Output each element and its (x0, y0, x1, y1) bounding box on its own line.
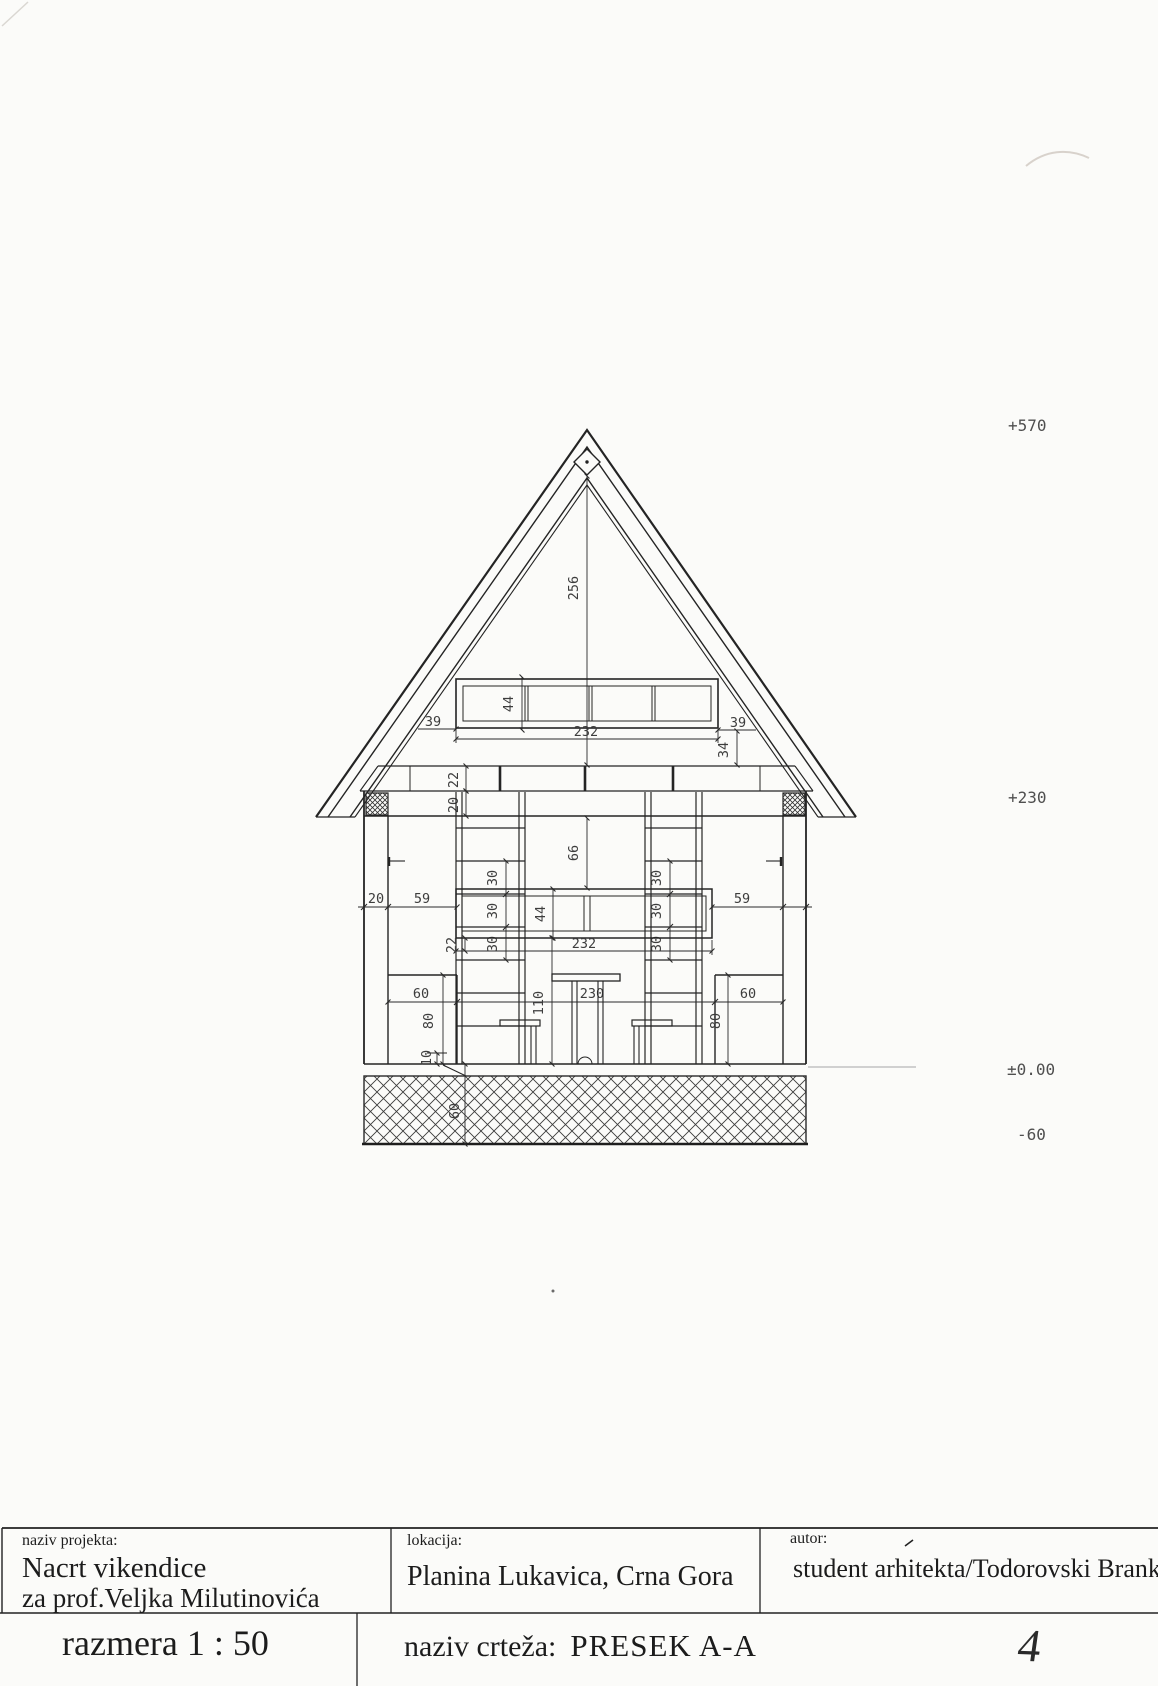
dim-label-232: 232 (572, 936, 596, 952)
dim-label-60-right: 60 (740, 986, 756, 1002)
dim-label-34: 34 (716, 742, 732, 758)
dim-label-44: 44 (533, 906, 549, 922)
dim-label-230: 230 (580, 986, 604, 1002)
drawing-title: naziv crteža: PRESEK A-A (404, 1630, 757, 1663)
scan-artifacts (2, 2, 1089, 1546)
shelf-column-left (456, 792, 525, 1064)
project-name: Nacrt vikendice (22, 1553, 206, 1583)
main-window-dims: 66 44 232 20 59 59 22 (358, 818, 812, 955)
scanned-sheet: 256 44 232 39 39 34 22 (0, 0, 1158, 1686)
elevation-ridge: +570 (1008, 416, 1047, 435)
dim-label-59-left: 59 (414, 891, 430, 907)
dim-label-sill-22: 22 (444, 937, 460, 953)
dim-label-66: 66 (566, 845, 582, 861)
drawing-title-name: PRESEK A-A (570, 1630, 757, 1663)
dim-label-foundation-60: 60 (447, 1103, 463, 1119)
dim-label-80-left: 80 (421, 1013, 437, 1029)
shelf-dims-left: 30 30 30 (485, 861, 509, 960)
wall-top-hatch-right (783, 793, 805, 815)
scale-value: razmera 1 : 50 (62, 1625, 269, 1663)
dim-label-gable-232: 232 (574, 724, 598, 740)
dim-label-30: 30 (485, 903, 501, 919)
upper-band: 22 (360, 766, 813, 791)
elevation-foundation: -60 (1017, 1125, 1046, 1144)
dim-label-20: 20 (368, 891, 384, 907)
dim-label-110: 110 (531, 991, 547, 1015)
location-label: lokacija: (407, 1533, 462, 1550)
dim-label-59-right: 59 (734, 891, 750, 907)
dim-label-30: 30 (649, 870, 665, 886)
project-label: naziv projekta: (22, 1533, 118, 1550)
dim-label-band-22: 22 (446, 772, 462, 788)
wall-top-hatch-left (366, 793, 388, 815)
foundation: 60 (362, 1064, 808, 1144)
dim-label-band-20: 20 (446, 797, 462, 813)
shelf-dims-right: 30 30 30 (649, 861, 673, 960)
dim-label-10: 10 (419, 1050, 435, 1066)
elevation-marks: +570 +230 ±0.00 -60 (808, 416, 1055, 1144)
dim-label-256: 256 (566, 576, 582, 600)
elevation-ground: ±0.00 (1007, 1060, 1055, 1079)
floor-slab: 10 (364, 1050, 806, 1076)
location-value: Planina Lukavica, Crna Gora (407, 1562, 734, 1591)
dim-label-gable-44: 44 (501, 696, 517, 712)
lower-band: 20 (364, 791, 806, 816)
author-label: autor: (790, 1531, 827, 1548)
dim-label-30: 30 (485, 870, 501, 886)
dim-label-39-left: 39 (425, 714, 441, 730)
project-client: za prof.Veljka Milutinovića (22, 1584, 320, 1612)
floor-object (578, 1057, 592, 1064)
dim-ridge-height: 256 (566, 476, 587, 765)
section-drawing: 256 44 232 39 39 34 22 (0, 0, 1158, 1686)
stool-right (632, 1020, 672, 1064)
bench-dims: 60 60 230 80 80 110 (388, 938, 783, 1064)
shelf-column-right (645, 792, 702, 1064)
dim-label-60-left: 60 (413, 986, 429, 1002)
elevation-eave: +230 (1008, 788, 1047, 807)
author-value: student arhitekta/Todorovski Branko (793, 1555, 1158, 1582)
roof (316, 430, 856, 817)
dim-label-80-right: 80 (708, 1013, 724, 1029)
dim-label-39-right: 39 (730, 715, 746, 731)
drawing-title-label: naziv crteža: (404, 1631, 556, 1663)
dim-label-30: 30 (649, 903, 665, 919)
stool-left (500, 1020, 540, 1064)
